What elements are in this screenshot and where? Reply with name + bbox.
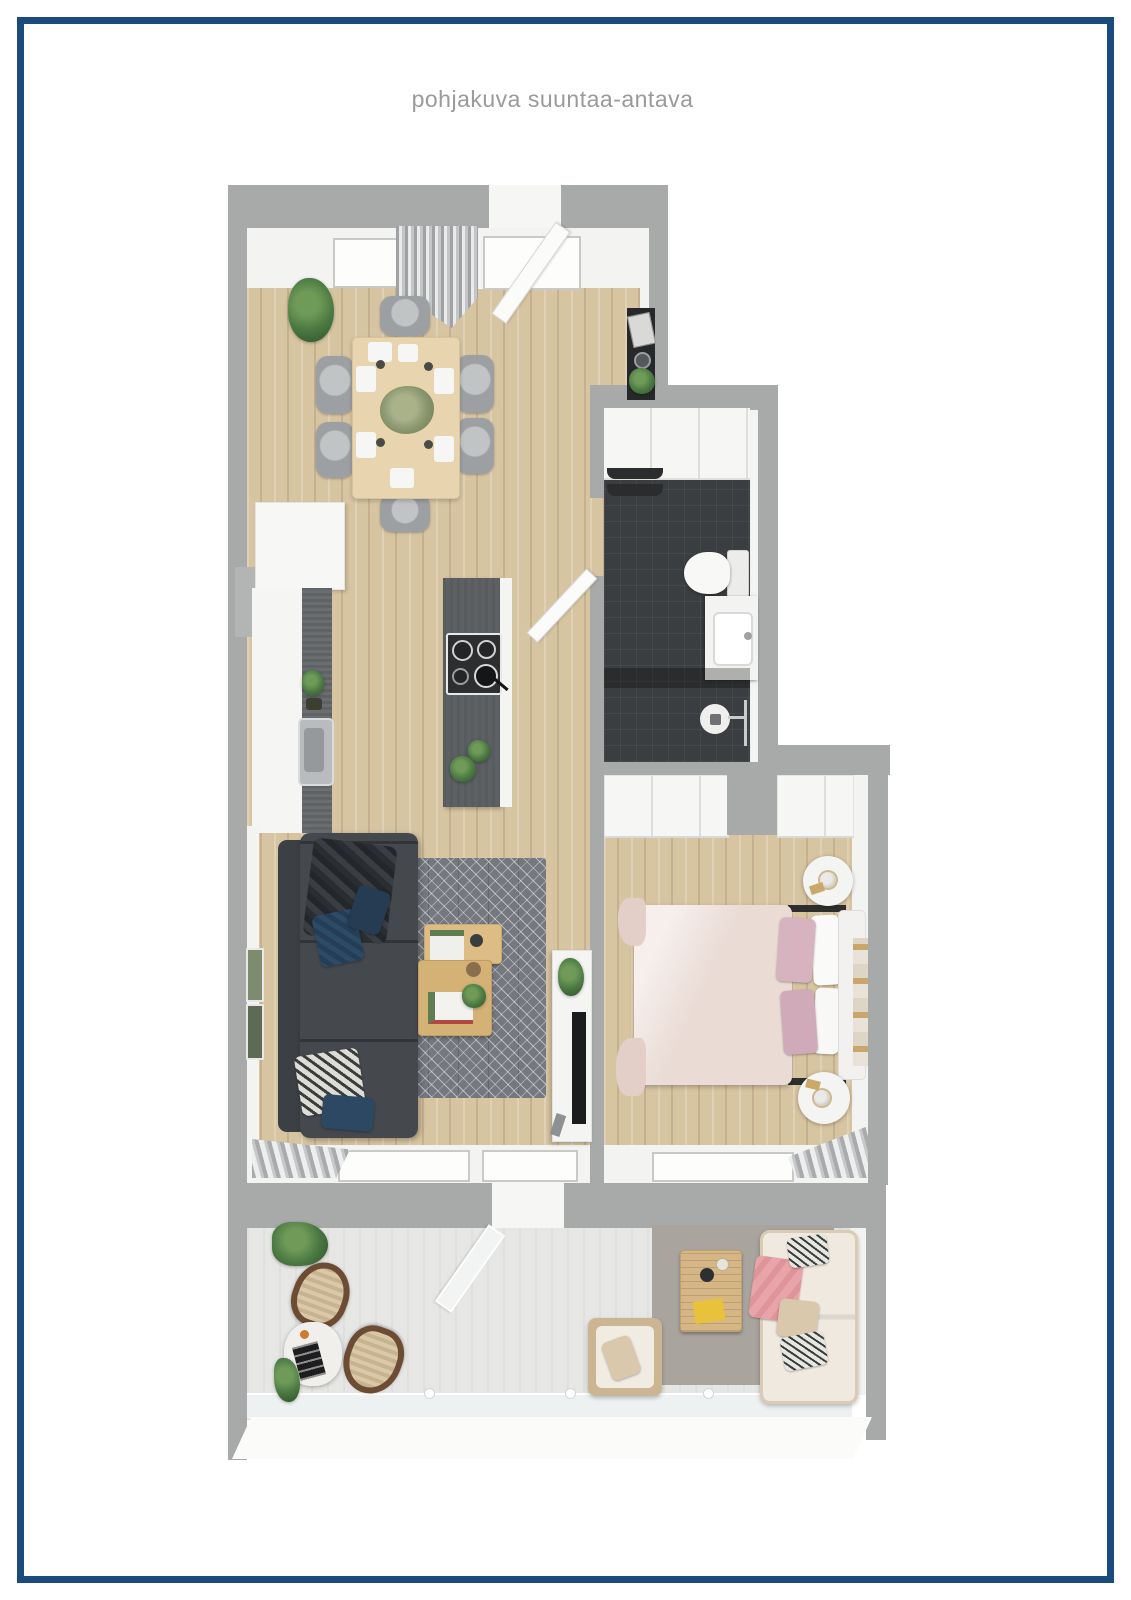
- entry-door-gap: [489, 185, 561, 228]
- cooktop-burner: [452, 668, 469, 685]
- bed-blanket-tail: [616, 1038, 646, 1096]
- dining-chair-left-1: [316, 356, 354, 414]
- wall-art: [246, 948, 264, 1002]
- bed-pillow-pink: [780, 989, 818, 1055]
- bedroom-window: [652, 1152, 794, 1182]
- table-cup: [424, 440, 433, 449]
- place-setting: [434, 368, 454, 394]
- railing-post: [566, 1389, 575, 1398]
- bathroom-door-threshold: [590, 498, 604, 576]
- leaning-artwork: [853, 938, 868, 1066]
- dining-plant: [288, 278, 334, 342]
- bed-frame-edge: [788, 905, 846, 912]
- bathroom-wall-left: [590, 410, 604, 775]
- bedroom-wardrobe-right: [777, 775, 854, 838]
- kitchen-counter-top: [302, 588, 332, 833]
- toilet-tank: [727, 550, 749, 598]
- washer-front: [607, 484, 663, 496]
- railing-post: [704, 1389, 713, 1398]
- dining-chair-left-2: [316, 422, 354, 478]
- bathroom-wall-right: [758, 385, 778, 775]
- dining-chair-right-1: [456, 355, 494, 413]
- shower-fixture-bar: [744, 700, 747, 746]
- balcony-table-bowl: [700, 1268, 714, 1282]
- console-plant: [629, 368, 655, 394]
- tv-screen: [572, 1012, 586, 1124]
- toilet-bowl: [684, 552, 730, 594]
- kitchen-counter-front: [252, 588, 303, 833]
- console-vase: [634, 352, 651, 369]
- balcony-pillow-patterned: [786, 1233, 830, 1268]
- tv-stand-plant: [558, 958, 584, 996]
- sofa-pillow-navy: [321, 1094, 376, 1132]
- bathroom-right-strip: [750, 410, 758, 762]
- nightstand-lamp: [814, 1090, 830, 1106]
- wall-top: [228, 185, 668, 228]
- kitchen-tall-cabinet: [255, 502, 345, 590]
- dining-window-1: [333, 238, 399, 288]
- place-setting: [356, 366, 376, 392]
- counter-herb-plant: [302, 670, 324, 696]
- coffee-table-books: [430, 930, 464, 960]
- place-setting: [434, 436, 454, 462]
- floor-plan: [0, 0, 1131, 1600]
- bedroom-wall-stub: [727, 762, 777, 835]
- place-setting: [390, 468, 414, 488]
- shower-threshold: [604, 668, 750, 688]
- island-plant-2: [450, 756, 476, 782]
- coffee-table-bowl: [470, 934, 483, 947]
- washer-front: [607, 468, 663, 479]
- table-cup: [376, 360, 385, 369]
- dining-chair-right-2: [456, 418, 494, 474]
- cooktop-burner: [477, 640, 496, 659]
- bed-pillow-pink: [776, 917, 816, 983]
- cooktop-burner: [452, 640, 473, 661]
- balcony-door-gap: [492, 1183, 564, 1228]
- bedroom-wardrobe-left: [604, 775, 729, 838]
- place-setting: [398, 344, 418, 362]
- balcony-bush: [272, 1222, 328, 1266]
- bed-duvet: [634, 905, 792, 1085]
- bathroom-wall-top: [590, 385, 778, 410]
- shower-fixture-arm: [728, 716, 747, 719]
- bedroom-wall-left: [590, 775, 604, 1185]
- wall-art: [246, 1004, 264, 1060]
- balcony-table-cup: [716, 1258, 729, 1271]
- coffee-table-tray: [466, 962, 481, 977]
- bed-blanket-tail: [618, 898, 646, 946]
- place-setting: [368, 342, 392, 362]
- place-setting: [356, 432, 376, 458]
- dining-chair-bottom: [380, 494, 430, 532]
- dining-chair-top: [380, 296, 430, 336]
- bedroom-wall-right: [868, 745, 888, 1185]
- balcony-wall-right: [866, 1183, 886, 1440]
- counter-bottles: [306, 698, 322, 710]
- table-cup: [376, 438, 385, 447]
- shower-drain-grate: [710, 714, 721, 725]
- living-window-2: [482, 1150, 578, 1182]
- table-cup: [424, 362, 433, 371]
- balcony-table-book: [693, 1298, 726, 1324]
- side-table-fruit: [300, 1330, 309, 1339]
- living-window-1: [338, 1150, 470, 1182]
- coffee-table-plant: [462, 984, 486, 1008]
- balcony-fascia: [232, 1417, 872, 1459]
- vanity-faucet: [744, 632, 752, 640]
- wall-left: [228, 185, 247, 1460]
- railing-post: [425, 1389, 434, 1398]
- kitchen-sink-basin: [304, 728, 324, 772]
